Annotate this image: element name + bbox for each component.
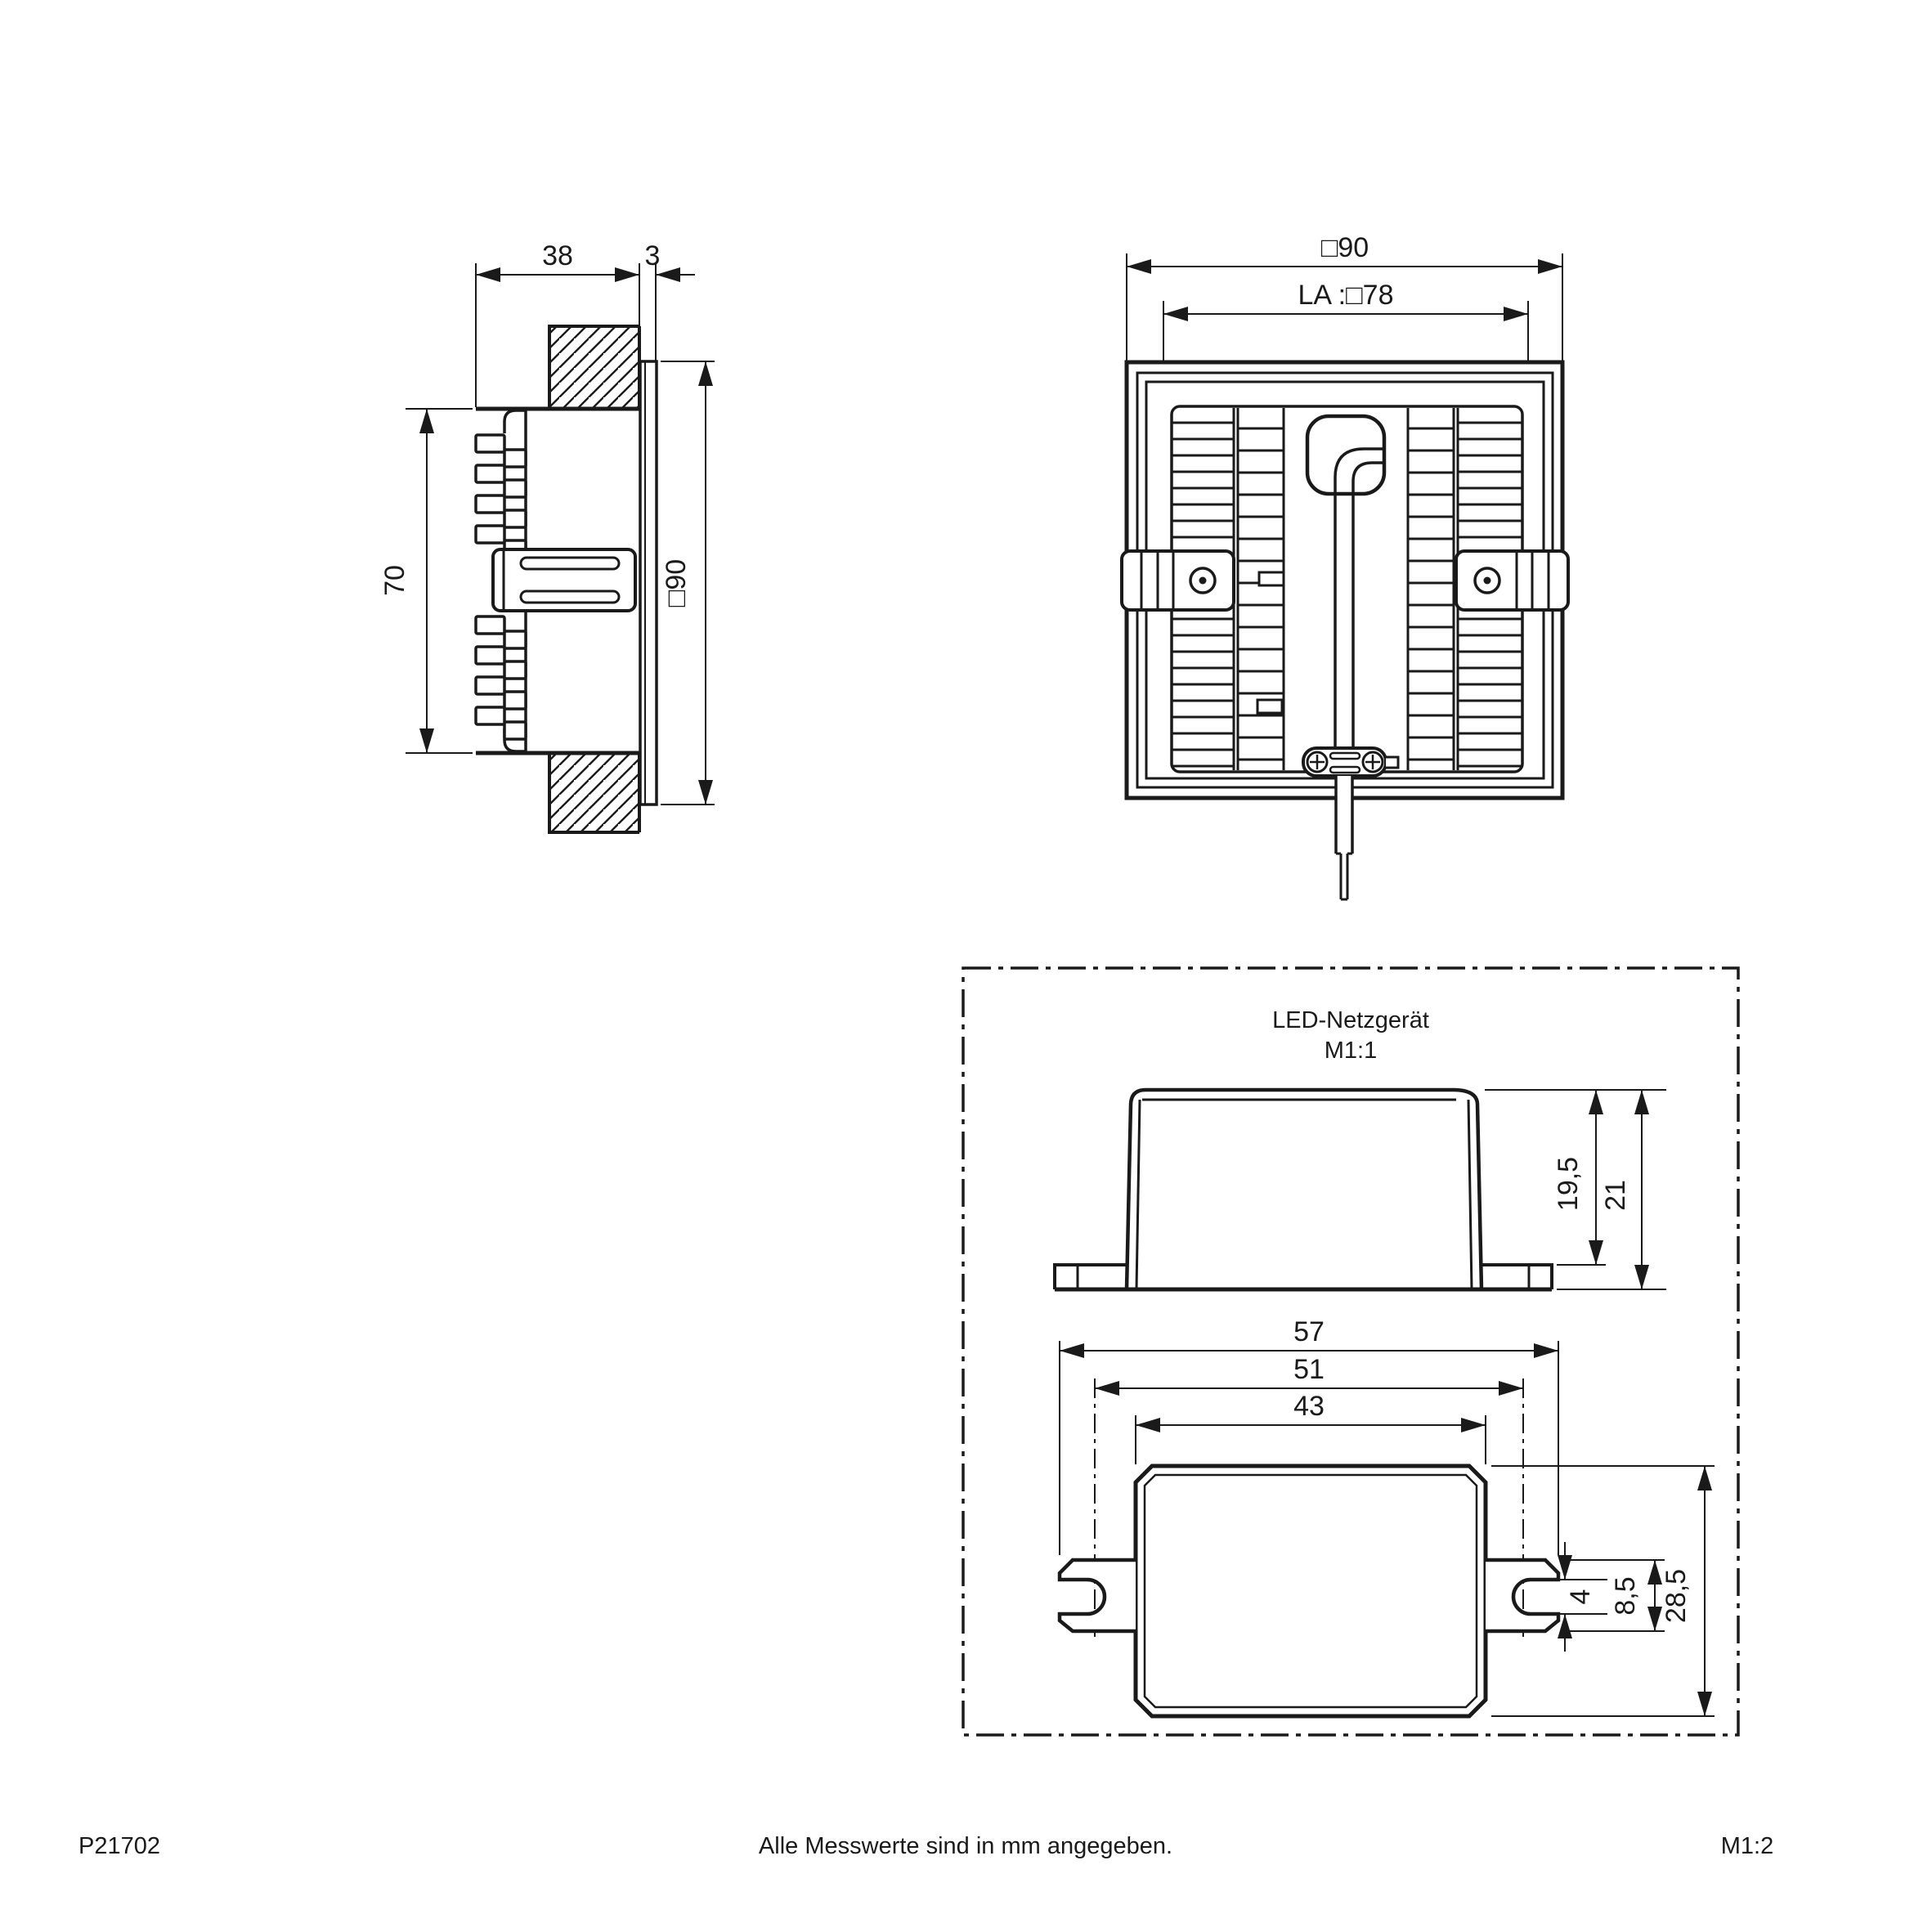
dim-psu-tab-height-label: 8,5 <box>1610 1576 1641 1615</box>
dim-psu-depth-label: 28,5 <box>1661 1569 1692 1623</box>
dim-cutout-78: LA :□78 <box>1163 280 1528 362</box>
cable-exit <box>1336 776 1352 899</box>
strain-relief-screw-right <box>1363 752 1383 772</box>
psu-flange-left <box>1055 1265 1127 1289</box>
dim-front-90: □90 <box>661 361 715 805</box>
psu-group: LED-Netzgerät M1:1 19,5 <box>963 968 1738 1735</box>
dim-psu-notch-label: 4 <box>1565 1589 1596 1605</box>
footer-note: Alle Messwerte sind in mm angegeben. <box>759 1833 1172 1859</box>
footer: P21702 Alle Messwerte sind in mm angegeb… <box>78 1833 1773 1859</box>
wall-section-bottom <box>549 753 639 832</box>
dim-height-70: 70 <box>379 409 473 753</box>
dim-psu-total-width-label: 57 <box>1293 1316 1325 1347</box>
dim-psu-notch: 4 <box>1547 1542 1607 1652</box>
front-bezel-side <box>640 361 657 805</box>
dim-front-label: □90 <box>661 559 692 607</box>
dim-cutout-label: LA :□78 <box>1298 280 1394 311</box>
plate-notch-upper <box>1259 572 1284 585</box>
wall-section-top <box>549 326 639 409</box>
psu-plan-view <box>1060 1466 1558 1716</box>
technical-drawing-page: 38 3 70 □90 <box>0 0 1932 1932</box>
strain-relief-screw-left <box>1307 752 1327 772</box>
psu-flange-right <box>1481 1265 1552 1289</box>
footer-scale: M1:2 <box>1721 1833 1773 1859</box>
dim-psu-depth: 28,5 <box>1491 1466 1715 1716</box>
dim-outer-label: □90 <box>1321 232 1369 263</box>
spring-clamp-side <box>493 549 635 611</box>
back-view: □90 LA :□78 <box>1122 232 1568 899</box>
psu-title: LED-Netzgerät <box>1272 1007 1429 1033</box>
plate-notch-lower <box>1257 700 1282 713</box>
psu-scale: M1:1 <box>1325 1038 1377 1064</box>
dim-psu-body-height-label: 19,5 <box>1553 1157 1584 1211</box>
spring-clamp-left <box>1122 551 1234 610</box>
dim-bezel-3: 3 <box>645 240 695 361</box>
psu-side-view <box>1055 1090 1552 1289</box>
psu-mounting-tab-right <box>1486 1560 1558 1631</box>
dim-psu-body-width-label: 43 <box>1293 1391 1325 1422</box>
luminaire-body <box>476 361 657 805</box>
dim-psu-body-height: 19,5 <box>1485 1090 1666 1265</box>
strain-relief <box>1303 748 1398 776</box>
dim-psu-total-height-label: 21 <box>1600 1180 1631 1211</box>
side-section-view: 38 3 70 □90 <box>379 240 715 832</box>
dim-psu-slot-spacing-label: 51 <box>1293 1354 1325 1385</box>
dim-bezel-label: 3 <box>645 240 661 271</box>
spring-clamp-right <box>1456 551 1568 610</box>
dim-height-label: 70 <box>379 565 410 596</box>
drawing-canvas: 38 3 70 □90 <box>0 0 1932 1932</box>
psu-mounting-tab-left <box>1060 1560 1136 1631</box>
footer-part-number: P21702 <box>78 1833 160 1859</box>
dim-depth-label: 38 <box>542 240 573 271</box>
dim-psu-body-width: 43 <box>1136 1391 1486 1464</box>
